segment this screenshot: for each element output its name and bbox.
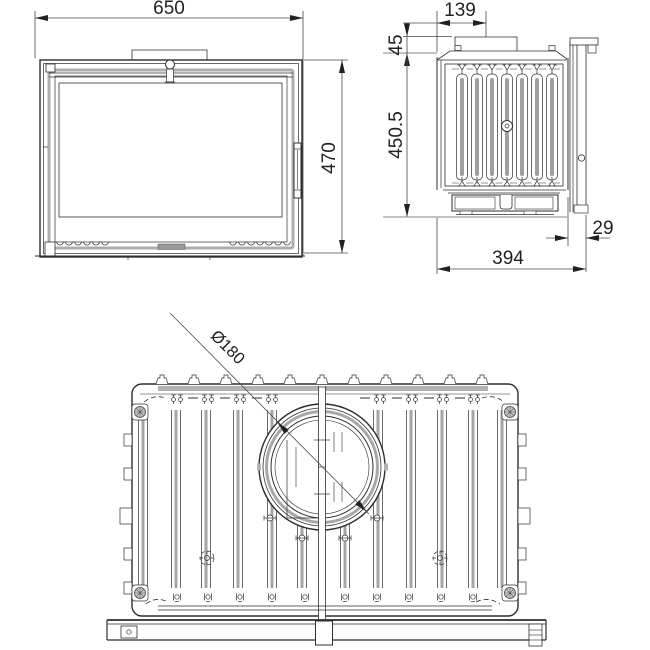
front-body [35,50,305,260]
side-top-plate [437,51,567,60]
side-flue-center-label: 139 [444,0,476,21]
side-dim-flue-center: 139 [403,0,486,52]
side-view: 139 45 450.5 [383,0,614,274]
front-height-label: 470 [319,142,340,174]
front-dim-height: 470 [304,60,348,253]
air-control-knob [166,60,175,69]
dim-arrow [290,15,303,21]
dim-arrow [35,15,48,21]
flue-collar [455,37,517,51]
side-collar-label: 45 [386,34,407,55]
front-width-label: 650 [153,0,185,19]
top-plate-tab [132,50,207,60]
door-handle [294,143,301,198]
side-depth-label: 394 [492,248,524,269]
top-center-rib [319,386,326,622]
stove-technical-drawing: 650 470 [0,0,650,650]
dim-arrow [437,266,450,272]
side-body [437,37,598,215]
side-dim-depth: 394 [437,218,586,274]
drawing-canvas: 650 470 [0,0,650,650]
front-view: 650 470 [35,0,348,260]
rear-mounting-frame [570,38,598,213]
top-edge-bumps [156,375,488,384]
front-outer-frame [40,60,302,257]
dim-arrow [555,235,568,241]
top-view: Ø180 [107,313,546,646]
side-center-boss [502,121,513,132]
corner-fitting [46,64,55,72]
center-foot-block [316,621,333,645]
dim-arrow [339,240,345,253]
dim-arrow [339,60,345,73]
flue-diameter-label: Ø180 [207,327,248,368]
side-rear-label: 29 [592,218,613,239]
front-frame-bar [107,620,546,646]
air-control-stem [167,69,174,82]
rating-plate [158,244,185,250]
ash-pan [452,195,558,215]
side-height-label: 450.5 [386,111,407,159]
bottom-bracket [45,242,55,256]
dim-arrow [573,266,586,272]
dim-arrow [404,204,410,217]
frame-end-plate [121,626,137,638]
